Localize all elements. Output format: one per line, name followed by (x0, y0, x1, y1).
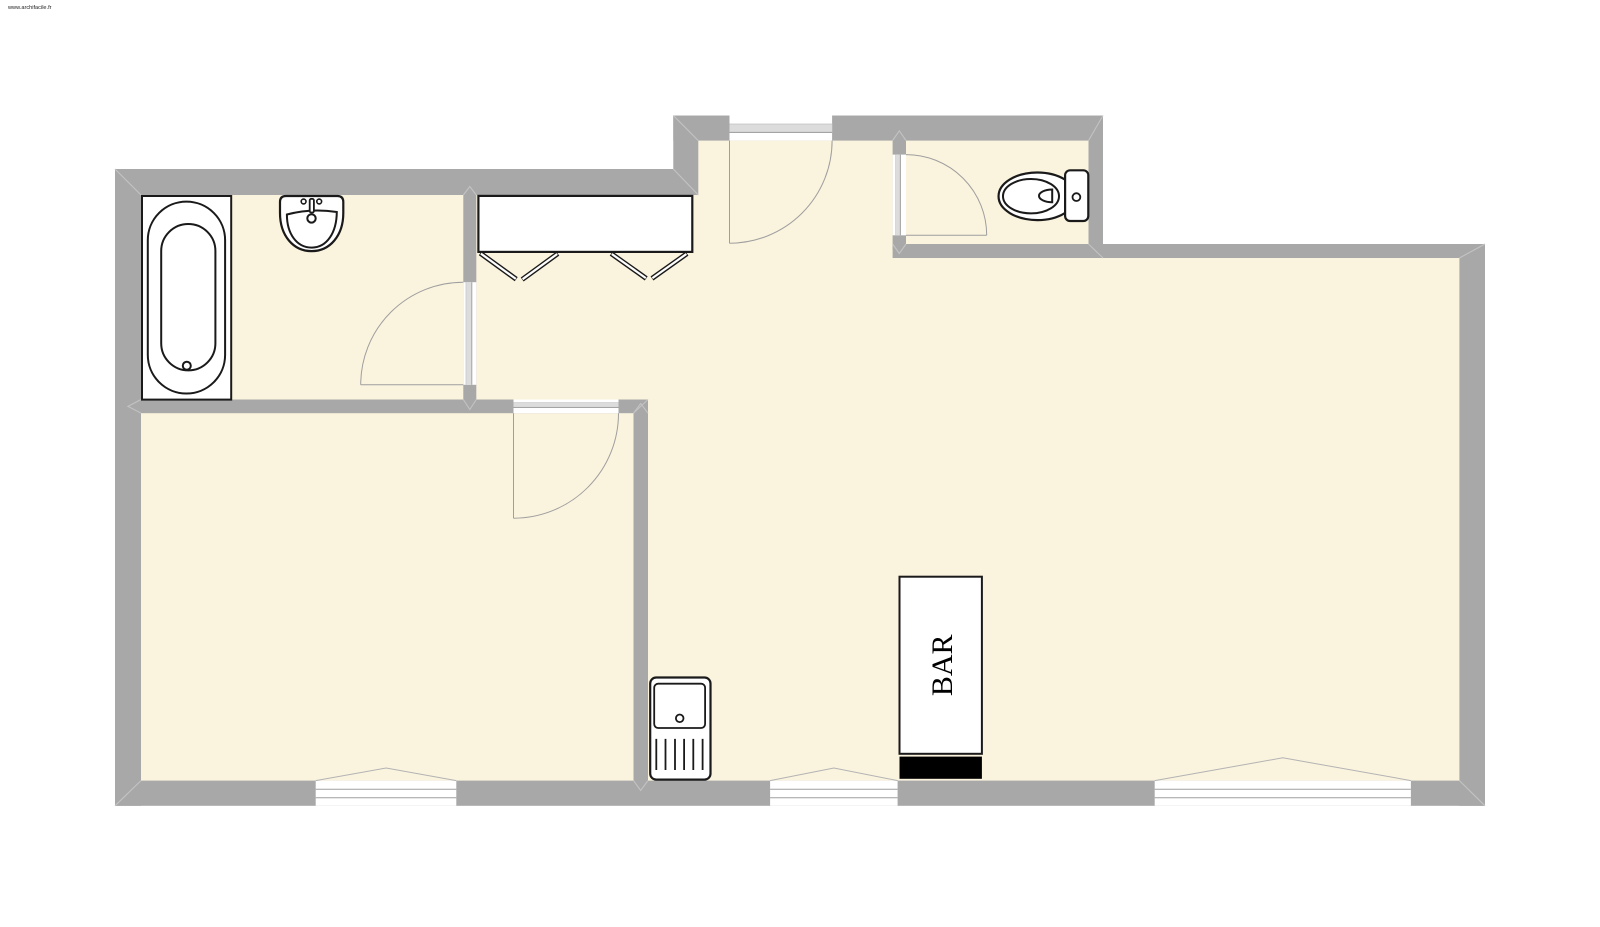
svg-text:BAR: BAR (926, 634, 959, 696)
svg-text:www.archifacile.fr: www.archifacile.fr (7, 5, 52, 11)
